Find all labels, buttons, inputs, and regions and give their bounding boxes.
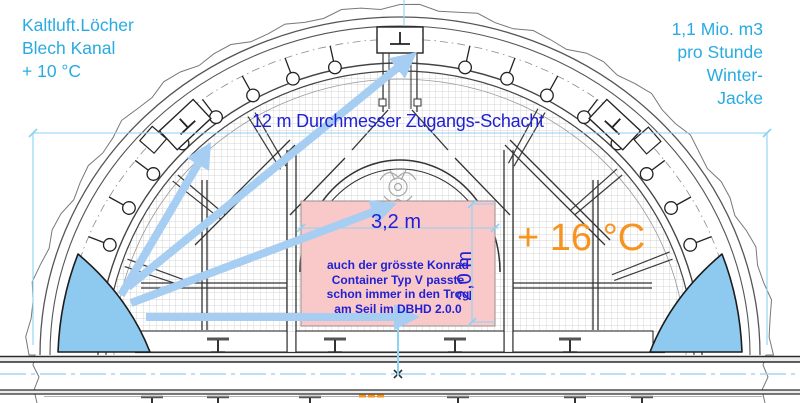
note-cold-air-line: + 10 °C [22,60,134,83]
note-airflow-line: pro Stunde [563,41,763,64]
floor-deck [140,331,653,352]
dbhd-cross-section-drawing: Kaltluft.Löcher Blech Kanal + 10 °C 1,1 … [0,0,800,403]
note-airflow-line: 1,1 Mio. m3 [563,18,763,41]
orange-marks [359,395,384,398]
note-container-line: Container Typ V passte [301,273,495,288]
note-container-line: am Seil im DBHD 2.0.0 [301,302,495,317]
label-inside-temperature: + 16 °C [517,217,645,260]
note-container-line: schon immer in den Trog [301,287,495,302]
note-airflow: 1,1 Mio. m3 pro Stunde Winter- Jacke [563,18,763,110]
note-cold-air-line: Kaltluft.Löcher [22,14,134,37]
label-shaft-diameter: 12 m Durchmesser Zugangs-Schacht [198,111,598,132]
note-container-fit: auch der grösste Konrad Container Typ V … [301,258,495,316]
label-trough-width: 3,2 m [346,211,446,234]
note-container-line: auch der grösste Konrad [301,258,495,273]
note-airflow-line: Jacke [563,87,763,110]
note-cold-air-line: Blech Kanal [22,37,134,60]
note-cold-air: Kaltluft.Löcher Blech Kanal + 10 °C [22,14,134,83]
note-airflow-line: Winter- [563,64,763,87]
